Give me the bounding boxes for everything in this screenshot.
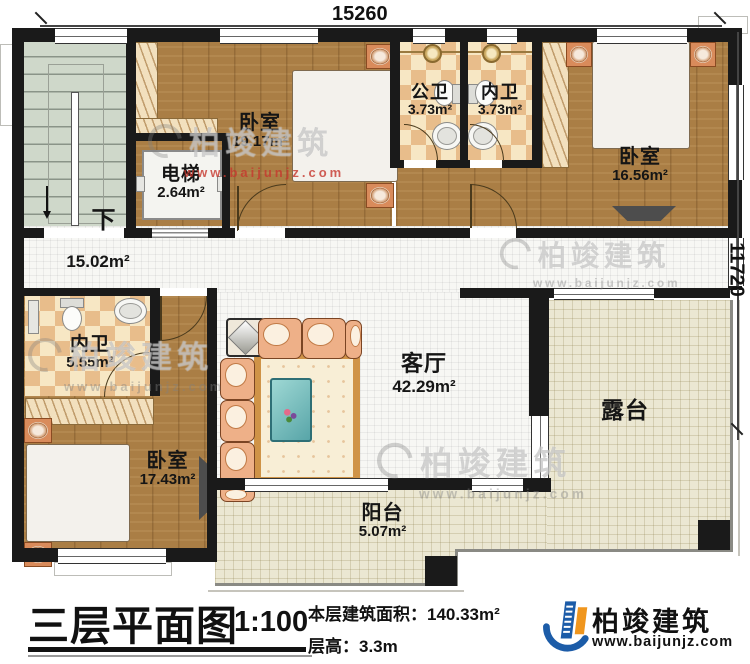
wall-living-bottom-1 [215,478,245,490]
room-name: 卧室 [200,112,320,134]
dimension-height: 11720 [725,230,748,310]
plan-scale: 1:100 [234,606,308,639]
room-label-elevator: 电梯 2.64m² [138,164,224,202]
room-label-bedroom-left: 卧室 17.43m² [120,450,215,489]
wall-hall-terrace-2 [654,288,730,298]
window-slider [531,416,549,478]
door-leaf [237,186,239,230]
room-label-inner-bath-mid: 内卫 5.55m² [40,334,140,372]
room-label-bedroom-top: 卧室 19.17m² [200,112,320,151]
stair-arrowhead [43,211,51,219]
wall-bedroom-left-right [207,288,217,548]
dimension-width: 15260 [332,3,388,26]
stair-railing [71,92,79,226]
room-label-balcony: 阳台 5.07m² [330,502,435,541]
corner-post [425,556,457,586]
room-area: 17.43m² [120,472,215,489]
balcony-parapet [215,583,458,586]
sofa-seat [220,400,255,442]
door-opening [470,228,516,238]
terrace-floor [545,300,731,550]
room-name: 内卫 [40,334,140,355]
room-area: 3.73m² [464,102,536,118]
door-leaf [160,296,162,340]
room-name: 阳台 [330,502,435,524]
logo-svg [538,596,592,654]
window-slider [245,478,388,492]
window-slider [472,478,523,492]
room-name: 客厅 [368,352,480,377]
title-underline-thin [28,655,312,657]
door-opening [160,288,207,296]
wall-living-bottom-2 [388,478,472,490]
room-area: 2.64m² [138,185,224,202]
room-name: 电梯 [138,164,224,185]
room-name: 露台 [575,398,675,424]
company-logo-icon [538,596,592,654]
nightstand [366,183,394,208]
door-leaf [470,184,472,228]
nightstand [566,42,592,67]
room-area: 3.73m² [396,102,464,118]
sink-icon [432,122,462,150]
wall-innerbath-top [12,288,160,296]
plan-title: 三层平面图 [28,592,238,652]
window [728,85,744,180]
window [58,548,166,564]
floor-area-text: 本层建筑面积：140.33m² [308,600,500,625]
balcony-parapet-outer [208,590,464,592]
elevator-door [152,228,208,238]
window [55,28,127,44]
floor-plan-canvas: 卧室 19.17m² 公卫 3.73m² 内卫 3.73m² 卧室 16.56m… [0,0,750,664]
door-opening [404,160,436,168]
door-opening [470,160,502,168]
room-area: 5.07m² [330,524,435,541]
wall-living-right [529,298,549,416]
hall-area-label: 15.02m² [48,252,148,271]
corner-post [698,520,730,550]
title-underline-thick [28,647,306,652]
down-text: 下 [88,208,120,235]
wall-innerbath-right [150,288,160,396]
sofa-seat [220,358,255,400]
window [554,288,654,300]
room-area: 42.29m² [368,377,480,396]
stair-direction-arrow [46,186,48,212]
window [220,28,318,44]
window-sill [54,562,172,576]
terrace-connector-floor [455,488,547,550]
shower-head-icon [482,44,501,63]
sofa-seat [258,318,302,359]
stairs-down-label: 下 [88,208,120,235]
wall-hall-terrace-1 [460,288,554,298]
room-name: 内卫 [464,82,536,102]
corner-post [523,478,551,492]
room-label-bedroom-right: 卧室 16.56m² [585,146,695,185]
bed [592,41,690,149]
coffee-table [270,378,312,442]
company-url: www.baijunjz.com [592,634,733,650]
room-area: 15.02m² [48,252,148,271]
toilet-icon [62,306,82,331]
nightstand [690,42,716,67]
floor-height-text: 层高：3.3m [308,632,398,657]
room-area: 16.56m² [585,168,695,185]
room-name: 卧室 [120,450,215,472]
window [487,28,517,44]
wardrobe [542,42,569,168]
shower-head-icon [423,44,442,63]
sink-icon [114,298,147,324]
room-area: 19.17m² [200,134,320,151]
room-label-terrace: 露台 [575,398,675,424]
window [413,28,445,44]
room-label-public-bath: 公卫 3.73m² [396,82,464,118]
dimension-tick [35,12,48,25]
room-area: 5.55m² [40,355,140,372]
room-label-inner-bath-top: 内卫 3.73m² [464,82,536,118]
bed [26,444,130,542]
room-name: 卧室 [585,146,695,168]
sofa-seat [302,318,346,359]
nightstand [24,418,52,443]
corridor-floor [396,164,542,228]
room-label-living: 客厅 42.29m² [368,352,480,396]
room-name: 公卫 [396,82,464,102]
connector-parapet [455,549,547,552]
window [597,28,687,44]
sofa-armrest [345,320,362,359]
towel-rail [28,300,39,334]
